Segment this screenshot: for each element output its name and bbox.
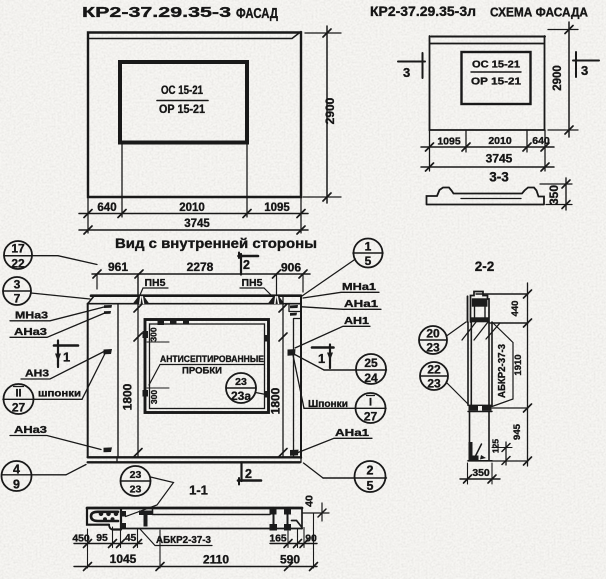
svg-text:1-1: 1-1 — [189, 483, 208, 498]
svg-text:2: 2 — [245, 467, 252, 481]
svg-text:II: II — [15, 388, 21, 400]
svg-text:АНа1: АНа1 — [335, 428, 369, 439]
svg-text:2900: 2900 — [323, 97, 337, 124]
svg-text:45: 45 — [125, 533, 137, 544]
svg-text:125: 125 — [491, 439, 501, 453]
svg-text:2: 2 — [243, 258, 250, 272]
svg-text:2: 2 — [367, 464, 374, 478]
svg-text:640: 640 — [97, 202, 116, 214]
svg-text:300: 300 — [149, 327, 159, 341]
svg-text:ОР 15-21: ОР 15-21 — [471, 76, 521, 88]
svg-text:МНа3: МНа3 — [15, 311, 48, 322]
svg-text:3745: 3745 — [486, 152, 513, 166]
svg-text:23: 23 — [426, 341, 440, 355]
svg-text:27: 27 — [12, 401, 26, 415]
svg-text:3: 3 — [403, 65, 410, 80]
svg-text:КР2-37.29.35-3л: КР2-37.29.35-3л — [370, 4, 476, 19]
svg-text:20: 20 — [426, 327, 440, 341]
svg-text:АБКР2-37-3: АБКР2-37-3 — [497, 344, 508, 398]
svg-text:Вид с внутренней стороны: Вид с внутренней стороны — [115, 236, 317, 251]
svg-text:1: 1 — [318, 351, 325, 366]
svg-text:КР2-37.29.35-3: КР2-37.29.35-3 — [82, 5, 231, 21]
svg-text:9: 9 — [13, 478, 20, 492]
svg-text:МНа1: МНа1 — [342, 282, 376, 293]
svg-text:АН1: АН1 — [344, 316, 369, 327]
svg-text:2010: 2010 — [179, 202, 205, 214]
svg-text:22: 22 — [427, 363, 441, 377]
svg-text:2900: 2900 — [552, 65, 564, 91]
svg-text:ФАСАД: ФАСАД — [236, 5, 278, 22]
svg-text:300: 300 — [149, 390, 159, 404]
svg-text:23: 23 — [130, 469, 142, 481]
svg-text:3: 3 — [14, 278, 21, 292]
svg-text:7: 7 — [14, 292, 21, 306]
svg-text:1: 1 — [365, 240, 372, 254]
svg-text:95: 95 — [96, 533, 108, 544]
svg-text:1910: 1910 — [513, 354, 524, 375]
svg-text:350: 350 — [472, 468, 490, 479]
svg-text:1045: 1045 — [110, 552, 137, 566]
svg-text:22: 22 — [11, 257, 25, 271]
svg-text:шпонки: шпонки — [38, 389, 81, 400]
svg-text:АНа3: АНа3 — [14, 327, 47, 338]
svg-text:25: 25 — [364, 356, 378, 370]
svg-text:2110: 2110 — [203, 553, 229, 567]
svg-text:1800: 1800 — [121, 383, 135, 410]
svg-text:I: I — [369, 397, 372, 409]
svg-text:24: 24 — [364, 371, 378, 385]
svg-text:640: 640 — [532, 135, 550, 147]
svg-text:1: 1 — [63, 350, 70, 365]
svg-text:3745: 3745 — [184, 218, 210, 230]
svg-text:3: 3 — [581, 63, 588, 78]
svg-text:906: 906 — [281, 261, 301, 275]
svg-text:23: 23 — [427, 377, 441, 391]
svg-text:17: 17 — [11, 242, 25, 256]
svg-text:2010: 2010 — [488, 135, 512, 147]
svg-text:ПН5: ПН5 — [145, 277, 166, 289]
svg-text:1095: 1095 — [264, 202, 290, 214]
svg-text:440: 440 — [510, 301, 521, 317]
svg-text:350: 350 — [547, 185, 561, 205]
svg-text:165: 165 — [269, 534, 287, 545]
svg-text:5: 5 — [367, 479, 374, 493]
svg-text:СХЕМА ФАСАДА: СХЕМА ФАСАДА — [490, 5, 589, 20]
svg-text:2278: 2278 — [187, 260, 214, 274]
svg-text:АБКР2-37-3: АБКР2-37-3 — [156, 535, 211, 546]
svg-text:90: 90 — [305, 534, 317, 545]
svg-text:ПРОБКИ: ПРОБКИ — [182, 366, 222, 377]
svg-text:4: 4 — [13, 463, 20, 477]
svg-text:23: 23 — [130, 484, 142, 496]
svg-text:АНа1: АНа1 — [344, 299, 378, 310]
svg-text:3-3: 3-3 — [489, 170, 509, 185]
svg-text:2-2: 2-2 — [475, 259, 495, 274]
svg-text:961: 961 — [108, 260, 128, 274]
svg-text:1095: 1095 — [437, 136, 461, 148]
svg-text:ОС 15-21: ОС 15-21 — [161, 85, 204, 97]
svg-text:АН3: АН3 — [25, 369, 49, 380]
svg-text:23: 23 — [235, 376, 247, 388]
svg-text:ОР 15-21: ОР 15-21 — [159, 104, 206, 116]
svg-text:5: 5 — [365, 254, 372, 268]
svg-text:27: 27 — [364, 410, 378, 424]
svg-text:590: 590 — [280, 553, 300, 567]
svg-text:40: 40 — [304, 495, 316, 507]
svg-text:АНТИСЕПТИРОВАННЫЕ: АНТИСЕПТИРОВАННЫЕ — [160, 354, 265, 365]
svg-text:1800: 1800 — [269, 387, 283, 414]
svg-text:ПН5: ПН5 — [242, 277, 263, 289]
svg-text:23а: 23а — [231, 389, 251, 403]
svg-text:ОС 15-21: ОС 15-21 — [472, 59, 520, 71]
svg-text:945: 945 — [512, 423, 523, 440]
svg-text:АНа3: АНа3 — [14, 425, 47, 436]
svg-text:450: 450 — [72, 534, 90, 545]
